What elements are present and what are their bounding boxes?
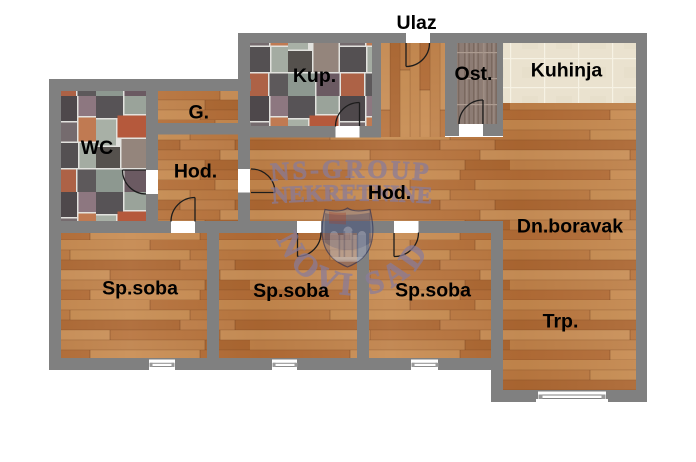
svg-text:Kup.: Kup. [293, 65, 336, 87]
svg-text:Dn.boravak: Dn.boravak [517, 216, 623, 238]
svg-text:G.: G. [189, 102, 210, 124]
svg-text:Hod.: Hod. [368, 182, 411, 204]
svg-text:Hod.: Hod. [174, 161, 217, 183]
svg-text:Sp.soba: Sp.soba [102, 278, 178, 300]
svg-text:Ost.: Ost. [455, 63, 493, 85]
svg-text:WC: WC [81, 137, 114, 159]
svg-text:Trp.: Trp. [543, 311, 579, 333]
svg-text:Kuhinja: Kuhinja [531, 60, 603, 82]
svg-text:Sp.soba: Sp.soba [395, 280, 471, 302]
svg-text:Ulaz: Ulaz [397, 12, 437, 34]
svg-text:Sp.soba: Sp.soba [253, 280, 329, 302]
